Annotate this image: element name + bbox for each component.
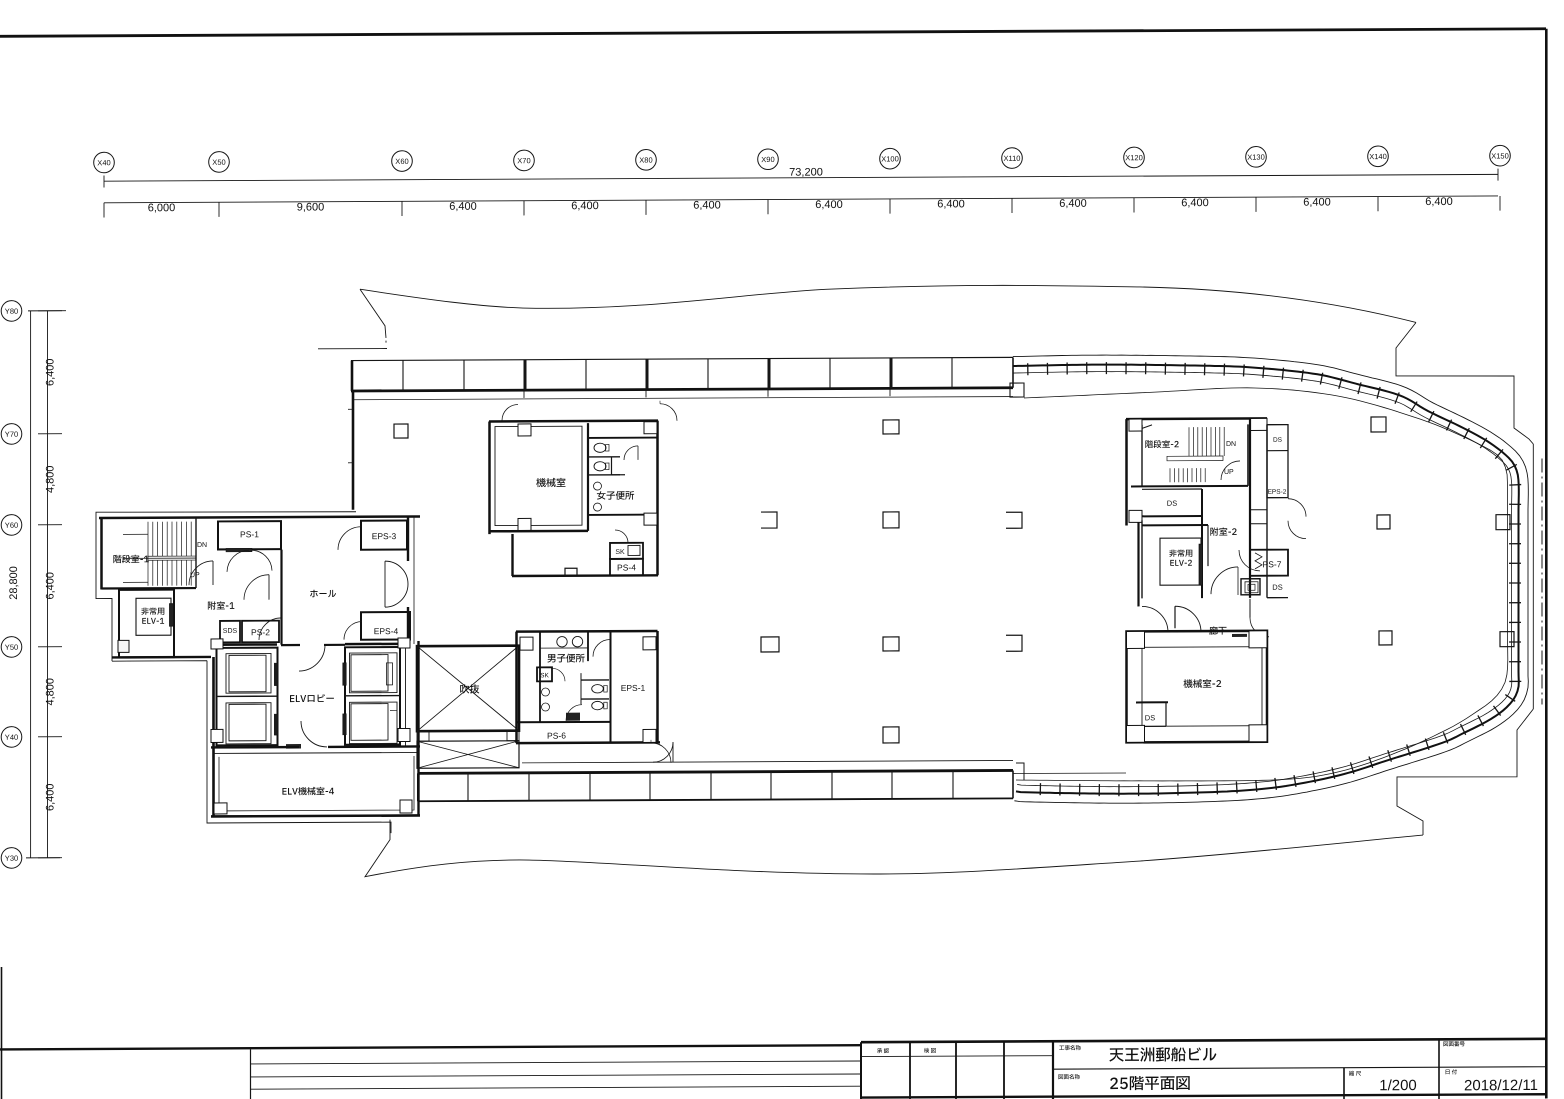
svg-text:6,400: 6,400 — [45, 783, 57, 811]
svg-text:PS-4: PS-4 — [617, 562, 636, 572]
svg-text:EPS-2: EPS-2 — [1268, 489, 1287, 496]
svg-text:X140: X140 — [1369, 152, 1387, 161]
svg-text:9,600: 9,600 — [297, 201, 325, 213]
svg-text:X100: X100 — [881, 154, 899, 163]
svg-text:6,400: 6,400 — [449, 201, 477, 213]
svg-text:6,400: 6,400 — [1425, 196, 1453, 208]
svg-text:Y50: Y50 — [5, 643, 18, 652]
svg-text:6,400: 6,400 — [937, 198, 965, 210]
svg-text:SDS: SDS — [223, 628, 238, 635]
svg-text:PS-1: PS-1 — [240, 529, 259, 539]
svg-text:73,200: 73,200 — [789, 166, 823, 178]
svg-text:X40: X40 — [97, 158, 110, 167]
svg-text:1/200: 1/200 — [1379, 1077, 1417, 1094]
svg-text:4,800: 4,800 — [45, 465, 57, 493]
svg-text:6,400: 6,400 — [815, 199, 843, 211]
svg-text:X50: X50 — [212, 158, 225, 167]
svg-text:DS: DS — [1272, 583, 1282, 592]
svg-text:EPS-3: EPS-3 — [372, 531, 397, 541]
svg-text:EPS-4: EPS-4 — [374, 626, 399, 636]
svg-text:DN: DN — [1226, 441, 1236, 448]
svg-text:6,400: 6,400 — [1181, 197, 1209, 209]
svg-text:28,800: 28,800 — [8, 566, 20, 600]
svg-text:6,400: 6,400 — [693, 199, 721, 211]
svg-text:Y30: Y30 — [5, 854, 18, 863]
svg-text:6,000: 6,000 — [148, 202, 176, 214]
svg-text:X150: X150 — [1491, 151, 1509, 160]
svg-text:UP: UP — [190, 572, 200, 579]
svg-text:PS-6: PS-6 — [547, 731, 566, 741]
svg-text:6,400: 6,400 — [45, 358, 57, 386]
svg-text:DN: DN — [197, 542, 207, 549]
svg-text:DS: DS — [1145, 713, 1155, 722]
svg-text:X90: X90 — [761, 155, 774, 164]
svg-text:DS: DS — [1273, 437, 1283, 444]
svg-text:X110: X110 — [1004, 154, 1021, 163]
svg-text:6,400: 6,400 — [571, 200, 599, 212]
svg-text:6,400: 6,400 — [45, 572, 57, 600]
svg-text:Y40: Y40 — [5, 733, 18, 742]
svg-text:Y60: Y60 — [5, 521, 18, 530]
svg-text:UP: UP — [1224, 469, 1234, 476]
svg-text:X60: X60 — [395, 157, 408, 166]
svg-text:6,400: 6,400 — [1059, 198, 1087, 210]
svg-text:PS-7: PS-7 — [1263, 559, 1282, 569]
svg-text:Y80: Y80 — [5, 307, 18, 316]
svg-text:DS: DS — [1167, 499, 1177, 508]
svg-text:Y70: Y70 — [5, 430, 18, 439]
svg-text:X80: X80 — [639, 156, 652, 165]
svg-text:SK: SK — [540, 672, 549, 679]
svg-text:X120: X120 — [1125, 153, 1143, 162]
svg-text:X70: X70 — [517, 156, 530, 165]
svg-text:SK: SK — [615, 549, 625, 556]
svg-text:X130: X130 — [1247, 153, 1265, 162]
svg-text:EPS-1: EPS-1 — [621, 683, 646, 693]
svg-text:4,800: 4,800 — [45, 678, 57, 706]
svg-text:6,400: 6,400 — [1303, 196, 1331, 208]
svg-text:2018/12/11: 2018/12/11 — [1464, 1077, 1538, 1094]
